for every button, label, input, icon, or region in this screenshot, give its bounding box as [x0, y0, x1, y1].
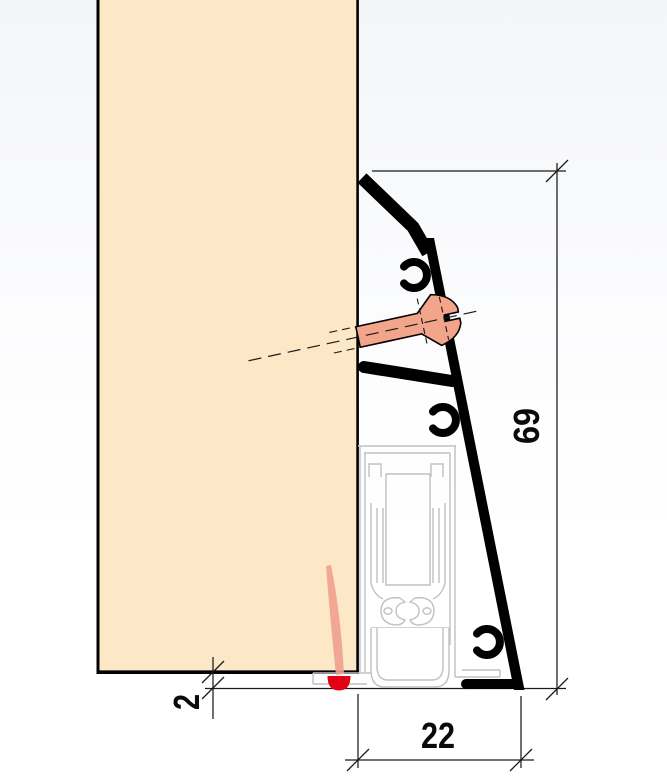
- drawing-canvas: 69 2 22: [0, 0, 667, 780]
- dimension-label-gap: 2: [166, 694, 207, 710]
- hook-hole-left: [384, 608, 392, 614]
- door-leaf-body: [97, 0, 358, 672]
- screw-channel-bottom: [477, 629, 500, 655]
- screw-channel-middle: [433, 407, 456, 433]
- spring-guides-left: [371, 503, 383, 583]
- dimension-label-height: 69: [506, 408, 547, 444]
- technical-drawing-page: 69 2 22: [0, 0, 667, 780]
- seal-carrier-bar: [386, 474, 430, 585]
- profile-top-flange: [362, 178, 428, 253]
- hook-hole-right: [423, 608, 431, 614]
- profile-support-arm: [364, 367, 452, 381]
- skirting-profile: [362, 178, 525, 690]
- bottom-plate-right: [455, 668, 500, 677]
- spring-guides-right: [433, 503, 445, 583]
- dimension-label-depth: 22: [421, 715, 455, 756]
- housing-notch-right: [431, 464, 443, 477]
- door-leaf: [97, 0, 360, 672]
- housing-notch-left: [369, 464, 381, 477]
- screw-channel-top: [404, 262, 427, 288]
